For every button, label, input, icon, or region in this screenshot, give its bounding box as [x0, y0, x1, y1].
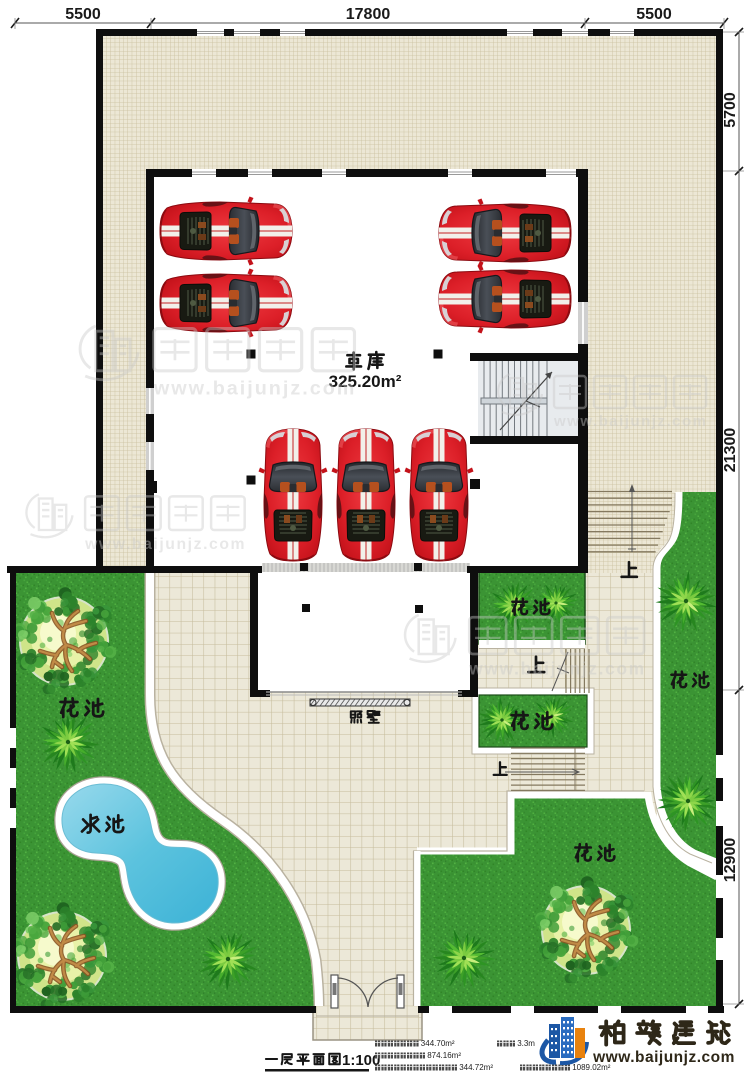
svg-text:www.baijunjz.com: www.baijunjz.com	[592, 1049, 735, 1066]
svg-text:17800: 17800	[346, 6, 391, 23]
svg-text:12900: 12900	[722, 838, 739, 883]
svg-text:344.70m²: 344.70m²	[421, 1039, 455, 1048]
svg-text:874.16m²: 874.16m²	[427, 1051, 461, 1060]
svg-text:3.3m: 3.3m	[517, 1039, 535, 1048]
svg-text:344.72m²: 344.72m²	[459, 1063, 493, 1072]
svg-text:5500: 5500	[65, 6, 101, 23]
svg-text:21300: 21300	[722, 428, 739, 473]
svg-text:5500: 5500	[636, 6, 672, 23]
svg-text:1:100: 1:100	[342, 1052, 380, 1069]
svg-text:5700: 5700	[722, 92, 739, 128]
